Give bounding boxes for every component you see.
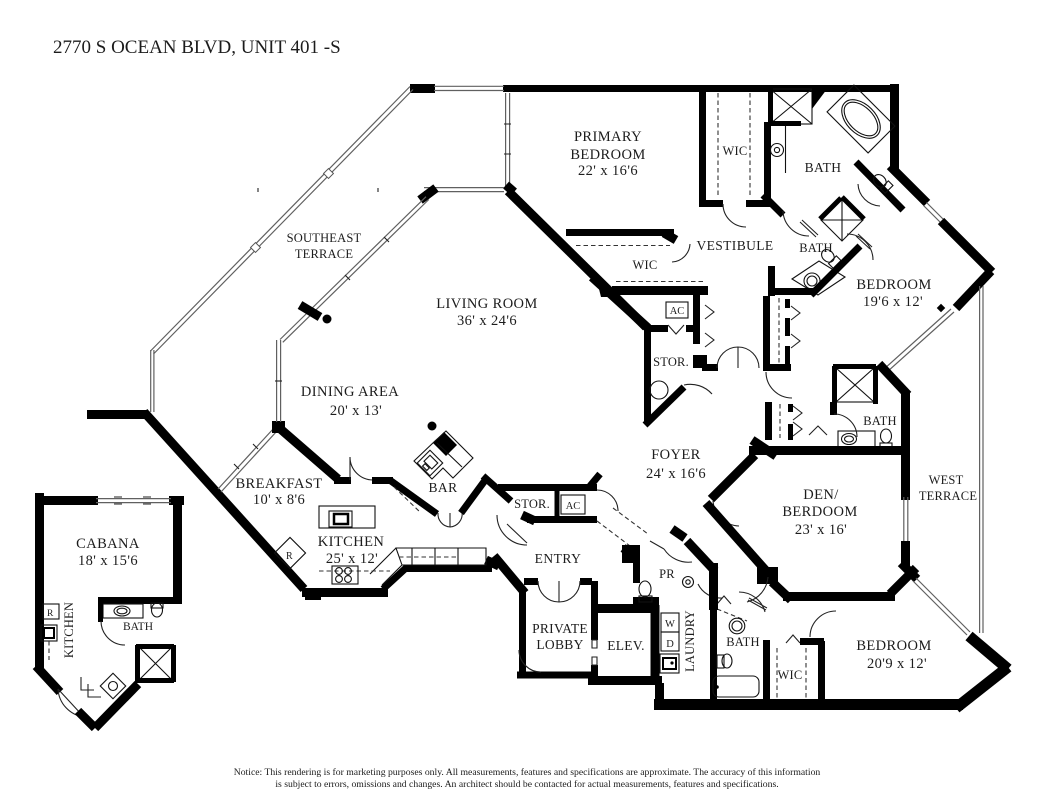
- svg-text:FOYER: FOYER: [651, 447, 701, 463]
- svg-text:Notice: This rendering is for: Notice: This rendering is for marketing …: [234, 767, 821, 778]
- svg-text:25' x 12': 25' x 12': [326, 551, 378, 567]
- svg-text:10' x 8'6: 10' x 8'6: [253, 492, 305, 508]
- svg-text:WIC: WIC: [778, 668, 803, 682]
- svg-text:VESTIBULE: VESTIBULE: [696, 238, 773, 253]
- svg-text:DINING AREA: DINING AREA: [301, 384, 399, 400]
- svg-text:R: R: [286, 551, 293, 562]
- svg-text:BATH: BATH: [805, 160, 842, 175]
- svg-text:SOUTHEAST: SOUTHEAST: [287, 231, 362, 245]
- svg-text:LOBBY: LOBBY: [536, 637, 583, 652]
- svg-text:BATH: BATH: [863, 414, 896, 428]
- svg-text:PRIVATE: PRIVATE: [532, 621, 588, 636]
- svg-text:W: W: [665, 619, 675, 630]
- svg-text:BATH: BATH: [799, 241, 832, 255]
- svg-text:R: R: [47, 609, 54, 619]
- svg-text:STOR.: STOR.: [653, 355, 689, 369]
- svg-text:KITCHEN: KITCHEN: [318, 534, 385, 550]
- svg-text:KITCHEN: KITCHEN: [62, 602, 76, 658]
- svg-text:LAUNDRY: LAUNDRY: [683, 610, 697, 672]
- svg-text:BATH: BATH: [726, 635, 759, 649]
- svg-text:WIC: WIC: [723, 144, 748, 158]
- svg-text:WIC: WIC: [633, 258, 658, 272]
- svg-text:24' x 16'6: 24' x 16'6: [646, 466, 706, 482]
- svg-text:AC: AC: [670, 306, 685, 317]
- svg-text:20' x 13': 20' x 13': [330, 403, 382, 419]
- svg-text:BEDROOM: BEDROOM: [856, 638, 931, 654]
- svg-text:CABANA: CABANA: [76, 536, 140, 552]
- svg-text:DEN/: DEN/: [803, 487, 839, 503]
- svg-text:BEDROOM: BEDROOM: [856, 277, 931, 293]
- svg-text:STOR.: STOR.: [514, 497, 550, 511]
- svg-text:ENTRY: ENTRY: [535, 551, 582, 566]
- svg-text:D: D: [666, 639, 674, 650]
- svg-text:BEDROOM: BEDROOM: [570, 147, 645, 163]
- svg-text:BERDOOM: BERDOOM: [782, 504, 857, 520]
- svg-text:TERRACE: TERRACE: [295, 247, 354, 261]
- svg-text:ELEV.: ELEV.: [607, 638, 645, 653]
- svg-text:PR: PR: [659, 567, 675, 581]
- svg-text:22' x 16'6: 22' x 16'6: [578, 163, 638, 179]
- svg-text:WEST: WEST: [929, 473, 964, 487]
- svg-text:20'9 x 12': 20'9 x 12': [867, 656, 927, 672]
- svg-text:2770 S OCEAN BLVD, UNIT 401 -S: 2770 S OCEAN BLVD, UNIT 401 -S: [53, 37, 341, 58]
- svg-text:is subject to errors, omission: is subject to errors, omissions and chan…: [275, 779, 778, 790]
- svg-text:BAR: BAR: [429, 480, 458, 495]
- svg-text:36' x 24'6: 36' x 24'6: [457, 313, 517, 329]
- svg-text:AC: AC: [566, 501, 581, 512]
- svg-text:BATH: BATH: [123, 621, 153, 633]
- svg-text:LIVING ROOM: LIVING ROOM: [436, 296, 537, 312]
- svg-text:23' x 16': 23' x 16': [795, 522, 847, 538]
- svg-text:19'6 x 12': 19'6 x 12': [863, 294, 923, 310]
- svg-text:TERRACE: TERRACE: [919, 489, 978, 503]
- svg-text:BREAKFAST: BREAKFAST: [235, 476, 322, 492]
- svg-text:PRIMARY: PRIMARY: [574, 129, 642, 145]
- svg-text:18' x 15'6: 18' x 15'6: [78, 553, 138, 569]
